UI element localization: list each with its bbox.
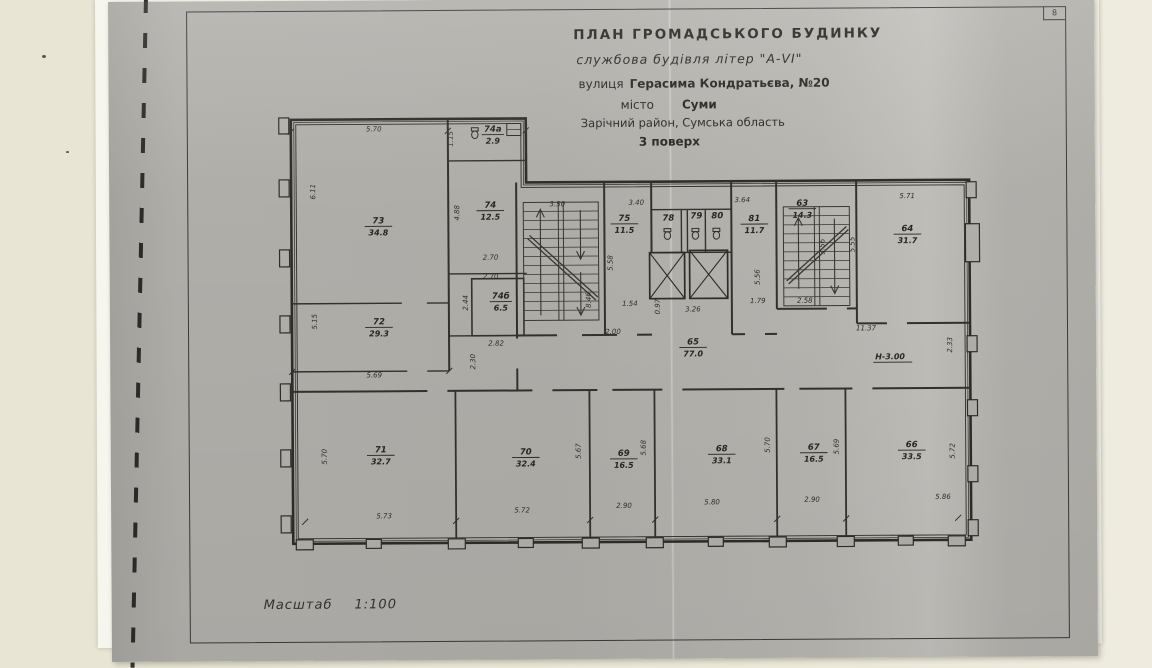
dimension-text: 5.70: [321, 448, 329, 464]
dimension-text: 2.30: [469, 353, 477, 369]
room-number: 72: [373, 317, 385, 327]
dimension-text: 3.26: [685, 305, 701, 313]
room-number: 67: [808, 443, 820, 453]
dimension-text: 2.70: [483, 254, 499, 262]
street-line: вулицяГерасима Кондратьєва, №20: [578, 76, 829, 92]
floor-plan-drawing: Н-3.00 7334.874а2.97412.574б6.57229.3751…: [276, 103, 994, 555]
dimension-text: 5.73: [376, 512, 392, 520]
plan-title: ПЛАН ГРОМАДСЬКОГО БУДИНКУ: [573, 25, 882, 43]
room-area: 29.3: [369, 329, 389, 338]
room-number: 80: [711, 211, 723, 221]
room-number: 63: [796, 199, 808, 209]
dimension-text: 5.70: [366, 125, 382, 133]
binding-perforation-marks: [131, 0, 148, 668]
dimension-text: 2.00: [605, 328, 621, 336]
room-area: 11.5: [615, 226, 635, 235]
wall-speck: [66, 151, 69, 153]
dimension-text: 4.88: [453, 205, 461, 221]
dimension-text: 5.15: [311, 313, 319, 329]
sheet-number: 8: [1052, 8, 1057, 17]
room-area: 12.5: [480, 213, 500, 222]
dimension-text: 5.86: [935, 493, 951, 501]
room-area: 33.5: [902, 452, 922, 461]
scanned-page: 8 ПЛАН ГРОМАДСЬКОГО БУДИНКУ службова буд…: [108, 0, 1098, 662]
room-area: 14.3: [792, 211, 812, 220]
dimension-text: 2.58: [797, 297, 813, 305]
dimension-text: 5.72: [949, 442, 957, 458]
room-number: 74: [484, 201, 496, 211]
elevator-shafts: [650, 250, 728, 298]
room-area: 2.9: [486, 137, 501, 146]
building-subtitle: службова будівля літер "А-VI": [576, 51, 802, 67]
room-number: 71: [375, 445, 387, 455]
room-number: 74б: [492, 291, 510, 302]
scale-note: Масштаб1:100: [264, 597, 397, 613]
dimension-text: 5.67: [575, 443, 583, 459]
photo-of-floor-plan-document: { "page": { "number": "8", "title": { "l…: [0, 0, 1152, 648]
dimension-text: 5.70: [764, 437, 772, 453]
wall-speck: [42, 55, 46, 58]
room-number: 79: [690, 211, 702, 221]
room-area: 33.1: [712, 456, 732, 465]
dimension-text: 5.58: [607, 255, 615, 271]
scale-value: 1:100: [354, 597, 397, 612]
dimension-text: 5.68: [640, 439, 648, 455]
scale-label: Масштаб: [264, 598, 333, 613]
dimension-text: 11.37: [856, 324, 877, 332]
room-number: 69: [618, 449, 630, 459]
dimension-text: 5.69: [833, 438, 841, 454]
room-number: 64: [901, 224, 913, 234]
room-number: 73: [372, 216, 384, 226]
room-number: 74а: [484, 125, 502, 135]
room-area: 31.7: [898, 236, 918, 245]
room-area: 16.5: [614, 461, 634, 470]
dimension-text: 5.80: [704, 498, 720, 506]
dimension-text: 5.71: [899, 192, 915, 200]
room-area: 11.7: [745, 226, 765, 235]
dimension-text: 6.11: [309, 184, 317, 200]
room-area: 32.4: [516, 459, 536, 468]
room-number: 70: [520, 447, 532, 457]
dimension-text: 3.56: [818, 238, 826, 254]
dimension-text: 2.70: [483, 273, 499, 281]
dimension-text: 2.82: [488, 340, 504, 348]
dimension-text: 5.56: [754, 269, 762, 285]
dimension-text: 5.72: [514, 506, 530, 514]
dimension-text: 0.97: [654, 298, 662, 314]
dimension-text: 1.15: [447, 131, 455, 147]
dimension-text: 3.40: [628, 199, 644, 207]
room-number: 75: [618, 214, 630, 224]
dimension-text: 8.46: [585, 292, 593, 308]
room-area: 16.5: [804, 455, 824, 464]
dimension-text: 1.79: [750, 297, 766, 305]
room-number: 66: [906, 440, 918, 450]
dimension-text: 2.90: [804, 496, 820, 504]
dimension-text: 5.55: [848, 236, 856, 252]
street-label: вулиця: [578, 77, 623, 91]
room-number: 81: [748, 214, 760, 224]
street-value: Герасима Кондратьєва, №20: [629, 76, 829, 91]
height-note: Н-3.00: [875, 352, 905, 361]
dimension-text: 2.44: [462, 295, 470, 311]
dimension-text: 3.64: [734, 196, 750, 204]
room-number: 78: [662, 214, 674, 224]
room-area: 32.7: [371, 457, 391, 466]
dimension-text: 2.33: [946, 337, 954, 353]
dimension-text: 3.50: [549, 200, 565, 208]
room-area: 6.5: [494, 304, 509, 313]
dimension-text: 2.90: [616, 502, 632, 510]
room-number: 65: [687, 337, 699, 347]
dimension-text: 5.69: [366, 371, 382, 379]
room-number: 68: [716, 444, 728, 454]
room-area: 77.0: [683, 349, 703, 358]
room-area: 34.8: [369, 228, 389, 237]
stairs-right: [783, 206, 850, 305]
sheet-number-box: 8: [1043, 6, 1065, 20]
dimension-text: 1.54: [622, 300, 638, 308]
